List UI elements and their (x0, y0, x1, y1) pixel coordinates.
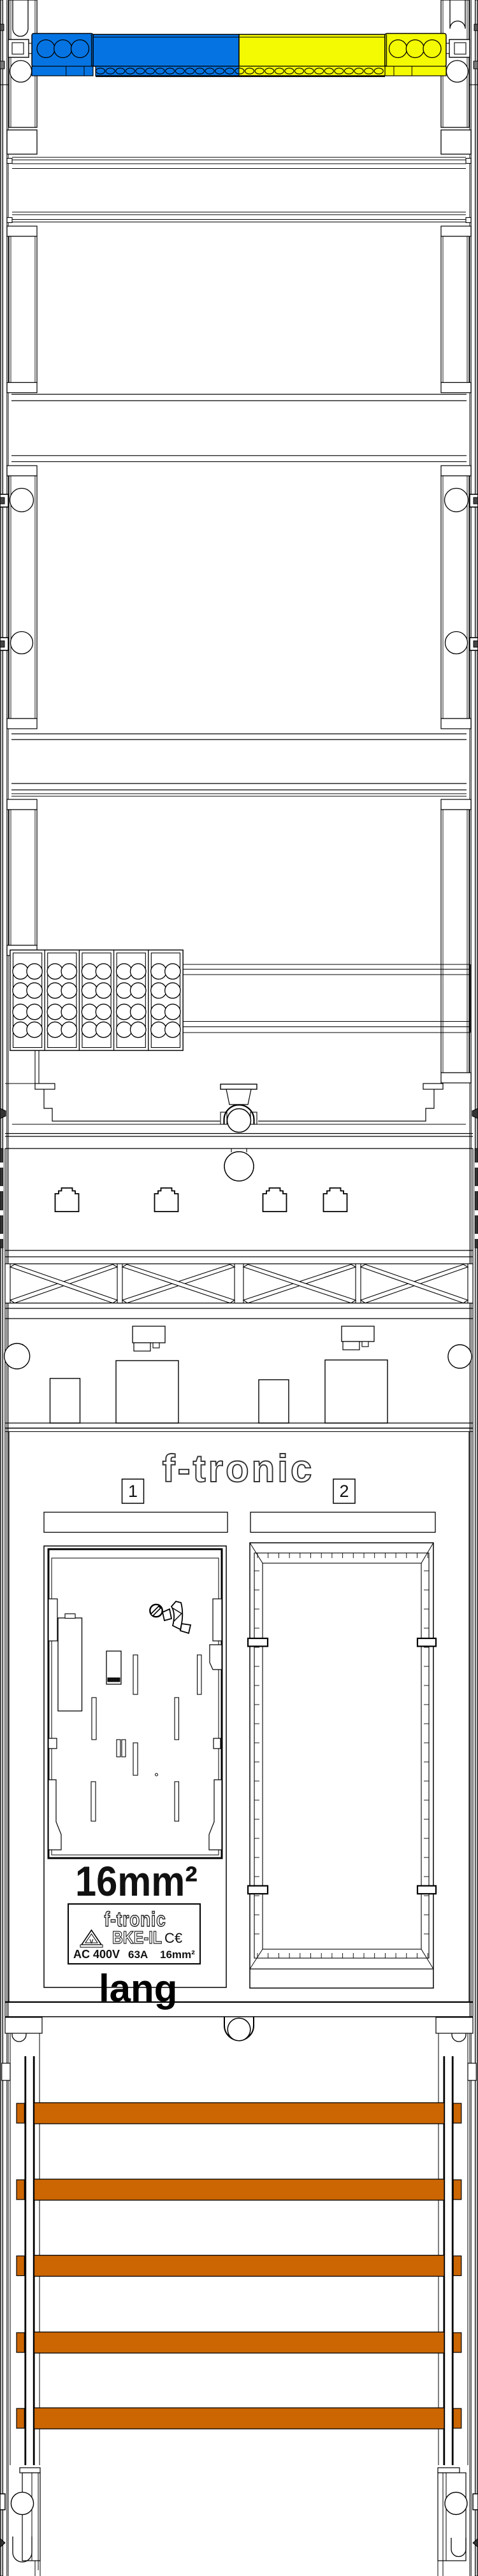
svg-text:63A: 63A (128, 1949, 148, 1961)
svg-text:f-tronic: f-tronic (163, 1447, 315, 1490)
svg-text:lang: lang (99, 1967, 177, 2010)
svg-text:V: V (89, 1938, 93, 1945)
svg-text:BKE-IL: BKE-IL (112, 1928, 162, 1947)
svg-text:16mm²: 16mm² (160, 1949, 195, 1961)
svg-text:AC 400V: AC 400V (73, 1948, 120, 1961)
svg-text:16mm²: 16mm² (75, 1857, 198, 1905)
svg-text:1: 1 (128, 1482, 138, 1501)
svg-text:C€: C€ (164, 1930, 182, 1946)
svg-text:2: 2 (339, 1482, 349, 1501)
